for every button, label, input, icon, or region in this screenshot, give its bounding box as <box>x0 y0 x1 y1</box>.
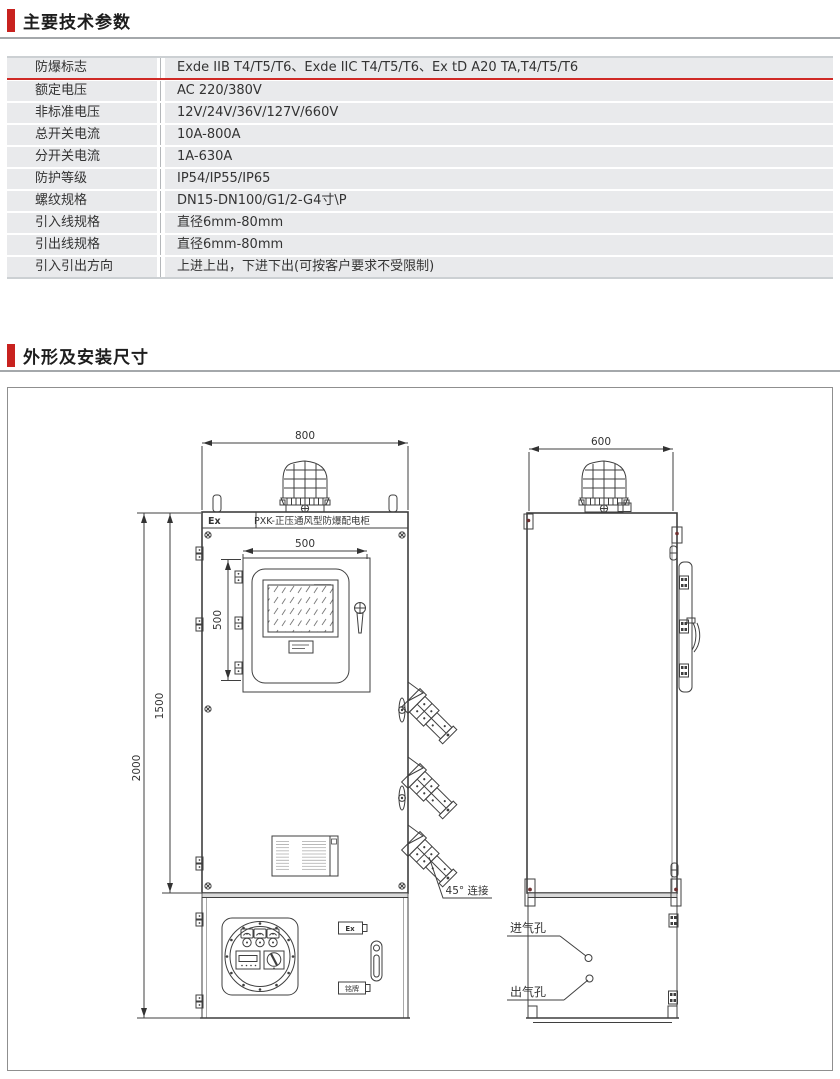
red-accent-bar <box>7 344 15 367</box>
dim-1500-label: 1500 <box>154 693 166 720</box>
spec-value: Exde IIB T4/T5/T6、Exde IIC T4/T5/T6、Ex t… <box>165 58 833 78</box>
side-view: 600 <box>507 436 700 1023</box>
dim-600-label: 600 <box>591 436 611 448</box>
instruction-plate <box>272 836 338 876</box>
meter-icon <box>236 951 260 969</box>
corner-bracket <box>524 514 533 529</box>
spec-value: 直径6mm-80mm <box>165 213 833 233</box>
section2-rule <box>0 370 840 372</box>
spec-label: 螺纹规格 <box>7 191 157 211</box>
nameplate-badge: 铭牌 <box>339 982 371 994</box>
dimension-drawing: 800 Ex PXK-正压通风型防爆配电柜 500 <box>7 387 833 1071</box>
window-glass <box>268 585 333 632</box>
foot-bracket <box>528 1006 537 1018</box>
lifting-lug <box>389 495 397 512</box>
rotary-switch-icon <box>264 951 284 969</box>
spec-value: 10A-800A <box>165 125 833 145</box>
section1-title-block: 主要技术参数 <box>7 8 131 33</box>
outlet-label: 出气孔 <box>510 984 546 999</box>
band-title: PXK-正压通风型防爆配电柜 <box>254 515 370 527</box>
spec-label: 额定电压 <box>7 81 157 101</box>
door-label-plate <box>289 641 313 653</box>
spec-label: 防爆标志 <box>7 58 157 78</box>
dim-500w-label: 500 <box>295 538 315 550</box>
table-row: 非标准电压 12V/24V/36V/127V/660V <box>7 103 833 123</box>
lower-compartment <box>202 898 408 1019</box>
ex-badge: Ex <box>339 922 368 934</box>
inlet-hole <box>585 955 592 962</box>
edge-bolt <box>399 786 406 810</box>
dim-2000-label: 2000 <box>131 755 143 782</box>
spec-value: 上进上出，下进下出(可按客户要求不受限制) <box>165 257 833 277</box>
slot-handle <box>371 941 382 981</box>
section1-rule <box>0 37 840 39</box>
spec-table: 防爆标志 Exde IIB T4/T5/T6、Exde IIC T4/T5/T6… <box>7 56 833 279</box>
spec-label: 非标准电压 <box>7 103 157 123</box>
spec-value: AC 220/380V <box>165 81 833 101</box>
spec-label: 引入引出方向 <box>7 257 157 277</box>
red-accent-bar <box>7 9 15 32</box>
ex-badge-label: Ex <box>345 925 355 933</box>
dim-800-label: 800 <box>295 430 315 442</box>
connector-note: 45° 连接 <box>446 884 489 897</box>
gauge-flange <box>222 918 298 995</box>
spec-value: DN15-DN100/G1/2-G4寸\P <box>165 191 833 211</box>
spec-label: 防护等级 <box>7 169 157 189</box>
catalog-page: 主要技术参数 防爆标志 Exde IIB T4/T5/T6、Exde IIC T… <box>0 0 840 1079</box>
spec-value: 12V/24V/36V/127V/660V <box>165 103 833 123</box>
foot-bracket <box>668 1006 677 1018</box>
table-row: 防护等级 IP54/IP55/IP65 <box>7 169 833 189</box>
table-row: 引出线规格 直径6mm-80mm <box>7 235 833 255</box>
door-handle <box>355 603 366 634</box>
nameplate-label: 铭牌 <box>345 984 359 993</box>
lifting-lug <box>213 495 221 512</box>
side-door-handle <box>687 618 700 652</box>
section2-title-block: 外形及安装尺寸 <box>7 343 149 368</box>
table-row: 总开关电流 10A-800A <box>7 125 833 145</box>
side-cabinet-body <box>527 513 677 893</box>
spec-label: 分开关电流 <box>7 147 157 167</box>
spec-value: 1A-630A <box>165 147 833 167</box>
spec-label: 引出线规格 <box>7 235 157 255</box>
compartment-divider <box>528 893 677 898</box>
outlet-hole <box>586 975 593 982</box>
table-row: 防爆标志 Exde IIB T4/T5/T6、Exde IIC T4/T5/T6… <box>7 58 833 80</box>
table-row: 引入线规格 直径6mm-80mm <box>7 213 833 233</box>
table-row: 额定电压 AC 220/380V <box>7 81 833 101</box>
table-row: 引入引出方向 上进上出，下进下出(可按客户要求不受限制) <box>7 257 833 277</box>
band-ex-mark: Ex <box>208 516 221 527</box>
spec-label: 引入线规格 <box>7 213 157 233</box>
spec-label: 总开关电流 <box>7 125 157 145</box>
section2-title: 外形及安装尺寸 <box>23 343 149 368</box>
front-view: 800 Ex PXK-正压通风型防爆配电柜 500 <box>131 430 492 1018</box>
table-row: 分开关电流 1A-630A <box>7 147 833 167</box>
compartment-divider <box>202 893 408 898</box>
table-row: 螺纹规格 DN15-DN100/G1/2-G4寸\P <box>7 191 833 211</box>
spec-value: IP54/IP55/IP65 <box>165 169 833 189</box>
inlet-label: 进气孔 <box>510 920 546 935</box>
section1-title: 主要技术参数 <box>23 8 131 33</box>
dim-500h-label: 500 <box>212 610 224 630</box>
spec-value: 直径6mm-80mm <box>165 235 833 255</box>
